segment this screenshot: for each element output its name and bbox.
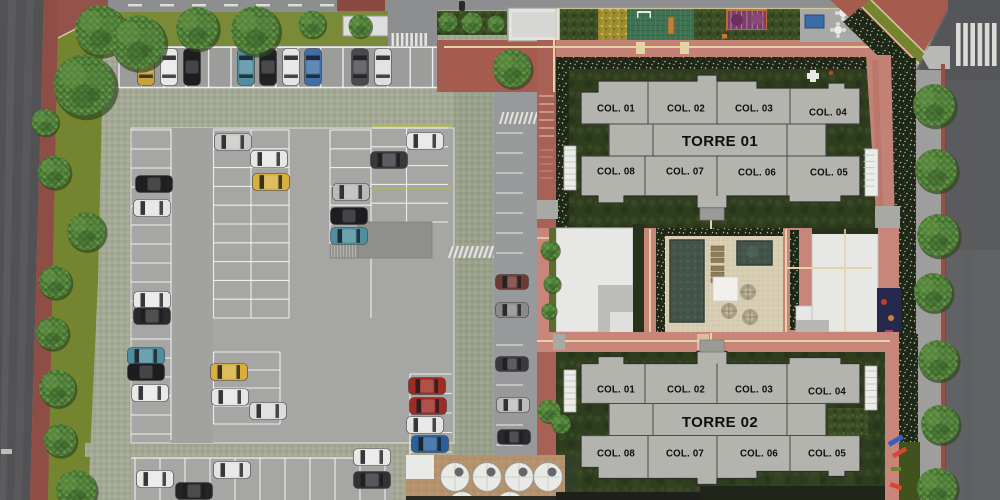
svg-text:COL. 05: COL. 05: [810, 168, 848, 179]
svg-text:COL. 01: COL. 01: [597, 385, 635, 396]
svg-text:TORRE 02: TORRE 02: [682, 414, 758, 431]
svg-text:COL. 06: COL. 06: [740, 449, 778, 460]
svg-text:COL. 04: COL. 04: [809, 108, 847, 119]
svg-text:COL. 06: COL. 06: [738, 168, 776, 179]
svg-text:COL. 02: COL. 02: [667, 104, 705, 115]
svg-text:COL. 03: COL. 03: [735, 104, 773, 115]
svg-text:COL. 03: COL. 03: [735, 385, 773, 396]
svg-text:COL. 04: COL. 04: [808, 387, 846, 398]
svg-text:COL. 08: COL. 08: [597, 449, 635, 460]
svg-text:COL. 07: COL. 07: [666, 167, 704, 178]
svg-text:COL. 08: COL. 08: [597, 167, 635, 178]
svg-text:COL. 02: COL. 02: [667, 385, 705, 396]
svg-text:COL. 07: COL. 07: [666, 449, 704, 460]
svg-text:COL. 05: COL. 05: [808, 449, 846, 460]
svg-text:TORRE 01: TORRE 01: [682, 133, 758, 150]
svg-text:COL. 01: COL. 01: [597, 104, 635, 115]
